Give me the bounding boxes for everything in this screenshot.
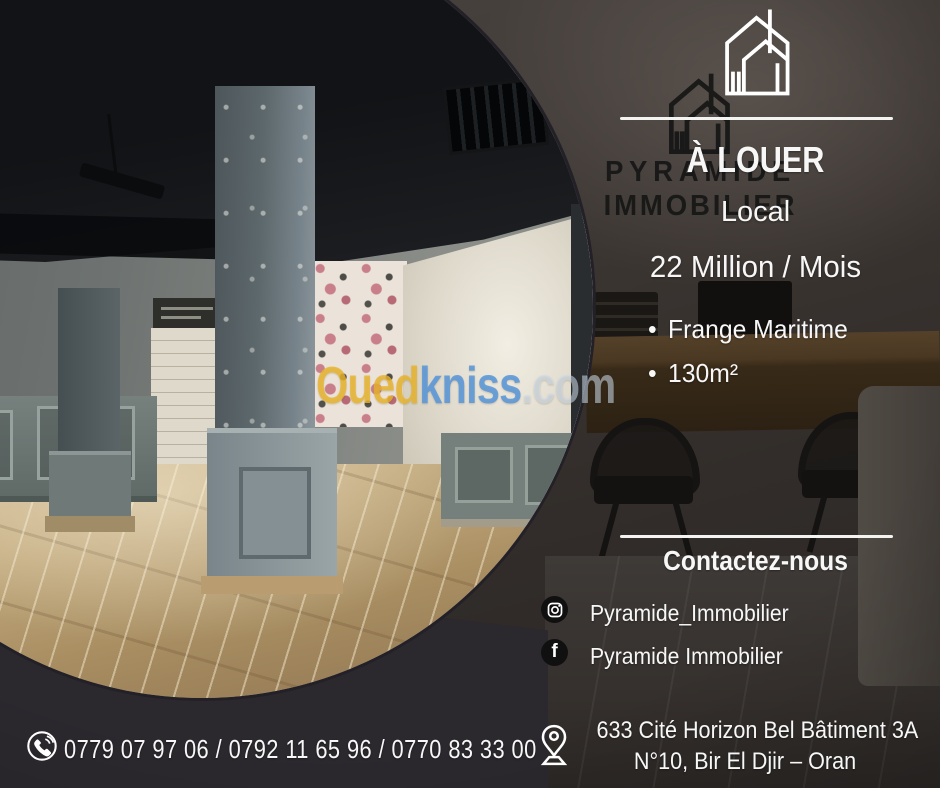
feature-surface: •130m² (648, 358, 738, 389)
wainscot-panel (455, 447, 513, 503)
map-pin-icon (538, 724, 570, 766)
instagram-glyph (547, 602, 563, 618)
photo-wall-sign (153, 298, 223, 330)
wainscot-panel (0, 410, 13, 480)
divider-contact (620, 535, 893, 538)
ouedkniss-watermark: Ouedkniss.com (316, 356, 615, 416)
photo-column-main (215, 86, 315, 438)
watermark-part-3: .com (522, 357, 616, 415)
watermark-part-2: kniss (419, 357, 521, 415)
feature-label: Frange Maritime (668, 314, 848, 344)
ad-canvas: PYRAMIDE IMMOBILIER (0, 0, 940, 788)
feature-frange-maritime: •Frange Maritime (648, 314, 848, 345)
address-line1: 633 Cité Horizon Bel Bâtiment 3A (597, 717, 894, 745)
photo-wainscot-right (441, 433, 593, 527)
facebook-name: Pyramide Immobilier (590, 643, 783, 670)
photo-column-small-base (49, 451, 131, 525)
photo-column-main-plinth (201, 576, 343, 594)
photo-ac-vent (443, 77, 550, 155)
bullet: • (648, 314, 657, 344)
property-photo (0, 0, 596, 701)
phone-icon (25, 729, 59, 763)
column-base-panel (239, 467, 311, 559)
instagram-handle: Pyramide_Immobilier (590, 600, 789, 627)
facebook-glyph: f (551, 641, 557, 663)
feature-label: 130m² (668, 358, 738, 388)
wainscot-panel (525, 445, 587, 505)
house-outline-icon (717, 8, 801, 100)
property-type: Local (598, 196, 913, 229)
bullet: • (648, 358, 657, 388)
facebook-icon: f (541, 639, 568, 666)
divider-top (620, 117, 893, 120)
photo-column-small-plinth (45, 516, 135, 532)
address-line2: N°10, Bir El Djir – Oran (597, 748, 894, 776)
watermark-part-1: Oued (316, 357, 419, 415)
status-a-louer: À LOUER (622, 139, 890, 181)
instagram-icon (541, 596, 568, 623)
contact-heading: Contactez-nous (617, 545, 894, 577)
photo-column-main-base (207, 428, 337, 585)
price: 22 Million / Mois (606, 249, 905, 285)
phone-numbers: 0779 07 97 06 / 0792 11 65 96 / 0770 83 … (64, 734, 537, 765)
